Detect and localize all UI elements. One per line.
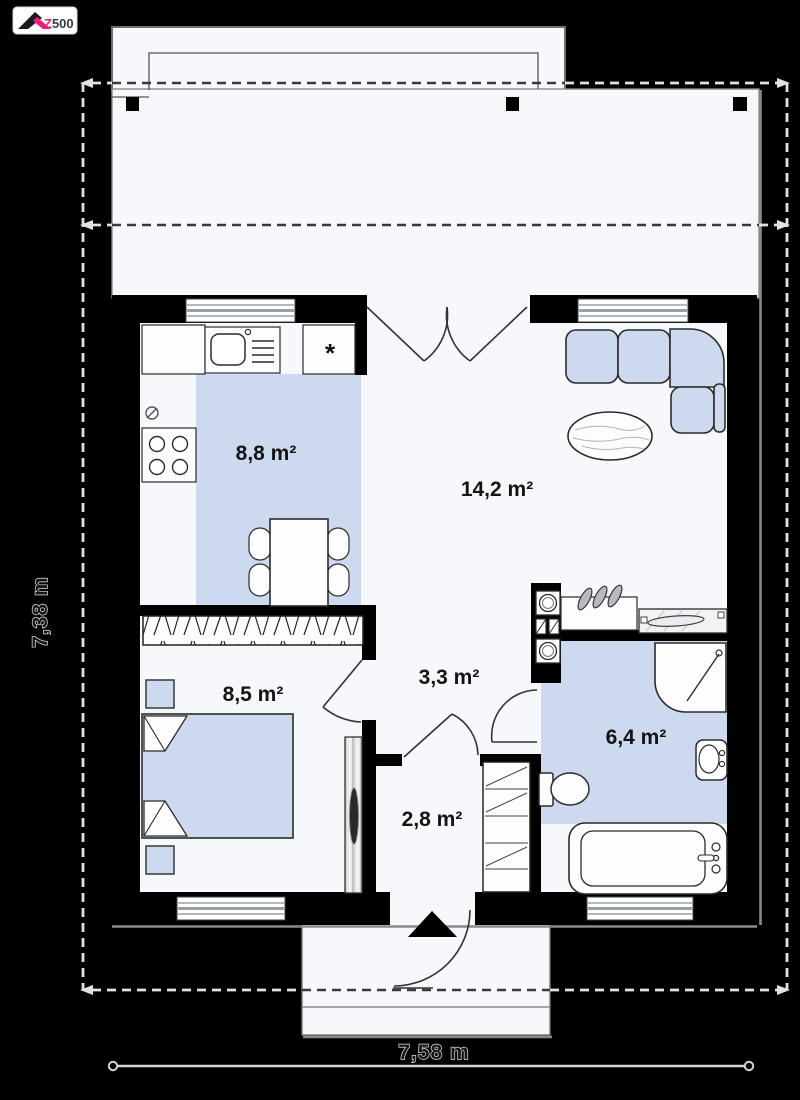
bedroom-area-label: 8,5 m² — [223, 683, 284, 706]
kitchen-sink-icon — [205, 327, 280, 373]
bedroom-window — [177, 897, 285, 920]
wall-kitchen-jamb — [355, 318, 367, 375]
logo-text-z: Z — [44, 16, 52, 31]
hall-area-label: 3,3 m² — [419, 666, 480, 689]
washing-machine-icon — [536, 591, 560, 615]
kitchen-window — [186, 299, 295, 322]
terrace-post — [506, 97, 519, 111]
logo-text-500: 500 — [52, 16, 74, 31]
tall-cabinet — [345, 737, 362, 893]
wall-kitchen-bedroom — [140, 605, 376, 616]
dryer-icon — [536, 639, 560, 663]
wall-left — [112, 295, 140, 892]
entrance-porch — [302, 923, 552, 1037]
nightstand — [146, 680, 174, 708]
bathtub-icon — [569, 823, 727, 894]
wall-bedroom-vestibule — [362, 720, 376, 892]
wall-hall-vestibule-left — [376, 754, 402, 766]
svg-text:Z500: Z500 — [44, 16, 74, 31]
bathroom-area-label: 6,4 m² — [606, 726, 667, 749]
wardrobe — [143, 616, 363, 645]
living-window — [578, 299, 688, 322]
floor-plan-screenshot: * — [0, 0, 800, 1100]
roof-slab — [112, 27, 565, 90]
living-area-label: 14,2 m² — [461, 478, 533, 501]
chair — [249, 528, 271, 560]
toilet-icon — [539, 773, 589, 806]
wall-bedroom-hall-top — [362, 605, 376, 660]
dining-table — [270, 519, 328, 606]
stove-icon — [142, 428, 196, 482]
z500-logo: Z500 — [13, 7, 77, 34]
width-dimension-label: 7,58 m — [398, 1041, 469, 1064]
height-dimension-label: 7,38 m — [29, 576, 52, 647]
vestibule-wardrobe — [483, 762, 530, 892]
terrace-post — [126, 97, 139, 111]
pantry-asterisk: * — [325, 338, 336, 368]
kitchen-counter — [142, 325, 205, 374]
floor-plan-canvas: * — [0, 0, 800, 1100]
sideboard-shelf — [639, 609, 727, 633]
terrace-floor — [112, 89, 759, 298]
shower-icon — [655, 643, 726, 712]
pantry-cell: * — [303, 325, 355, 374]
terrace-post — [733, 97, 747, 111]
wall-right — [727, 295, 757, 892]
nightstand — [146, 846, 174, 874]
vestibule-area-label: 2,8 m² — [402, 808, 463, 831]
chair — [327, 564, 349, 596]
rug — [568, 412, 652, 460]
bathroom-window — [587, 897, 693, 920]
chair — [327, 528, 349, 560]
chair — [249, 564, 271, 596]
kitchen-area-label: 8,8 m² — [236, 442, 297, 465]
washbasin-icon — [696, 740, 727, 780]
